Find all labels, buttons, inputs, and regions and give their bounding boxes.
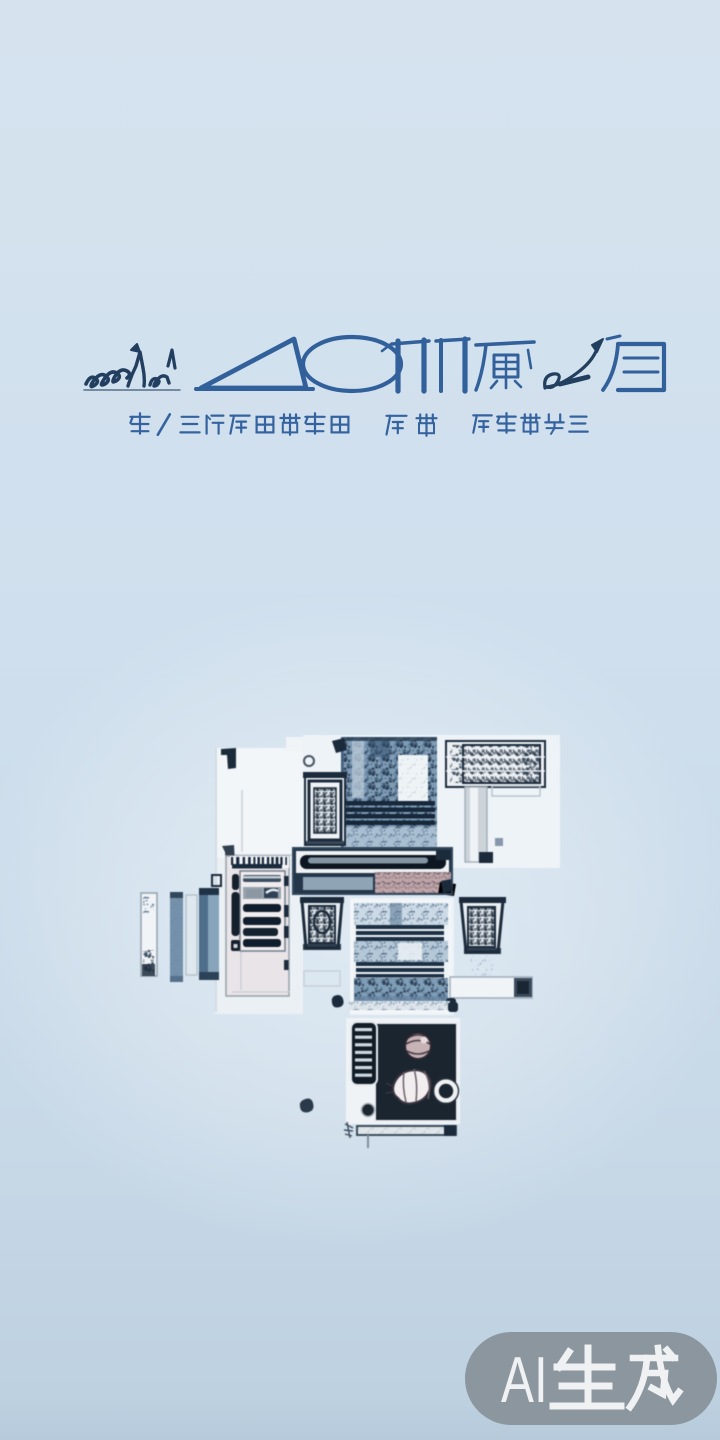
svg-text:AI: AI xyxy=(501,1345,548,1417)
